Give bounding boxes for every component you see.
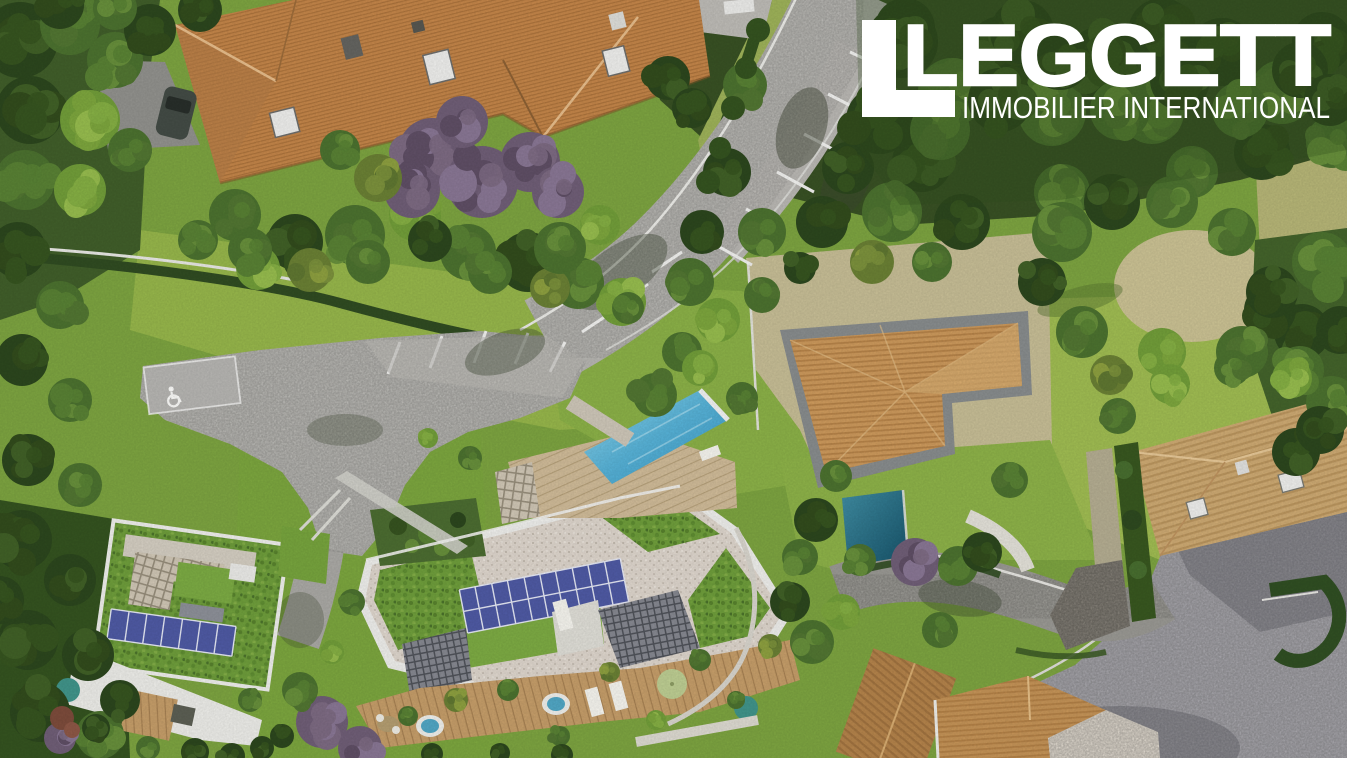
svg-text:IMMOBILIER INTERNATIONAL: IMMOBILIER INTERNATIONAL [962,90,1330,125]
